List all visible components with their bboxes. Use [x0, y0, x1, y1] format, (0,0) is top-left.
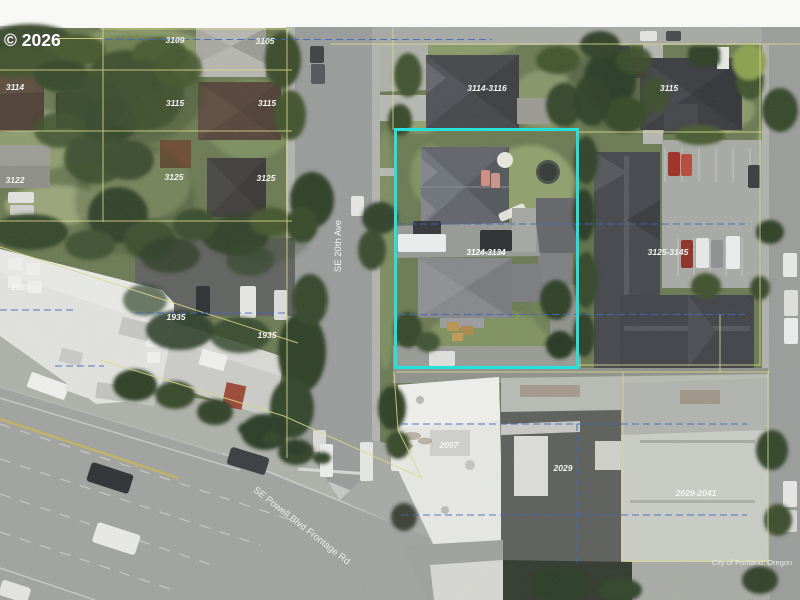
svg-text:2029: 2029: [553, 463, 573, 473]
svg-text:3115: 3115: [166, 98, 185, 108]
svg-text:3122: 3122: [6, 175, 25, 185]
svg-text:3105: 3105: [256, 36, 275, 46]
svg-text:3125: 3125: [257, 173, 276, 183]
svg-text:3115: 3115: [660, 83, 679, 93]
svg-text:3114-3116: 3114-3116: [467, 83, 507, 93]
svg-text:3125: 3125: [165, 172, 184, 182]
svg-text:1935: 1935: [11, 282, 30, 292]
svg-text:City of Portland, Oregon: City of Portland, Oregon: [712, 558, 792, 567]
svg-text:3114: 3114: [6, 82, 25, 92]
svg-text:1935: 1935: [258, 330, 277, 340]
svg-text:3109: 3109: [166, 35, 185, 45]
svg-text:© 2026: © 2026: [4, 30, 61, 50]
svg-text:SE 20th Ave: SE 20th Ave: [333, 220, 344, 272]
svg-text:3115: 3115: [258, 98, 277, 108]
svg-text:3124-3134: 3124-3134: [466, 248, 506, 257]
svg-text:2007: 2007: [439, 440, 460, 450]
svg-text:2029-2041: 2029-2041: [675, 488, 717, 498]
svg-text:1935: 1935: [167, 312, 186, 322]
svg-text:3125-3145: 3125-3145: [648, 247, 689, 257]
